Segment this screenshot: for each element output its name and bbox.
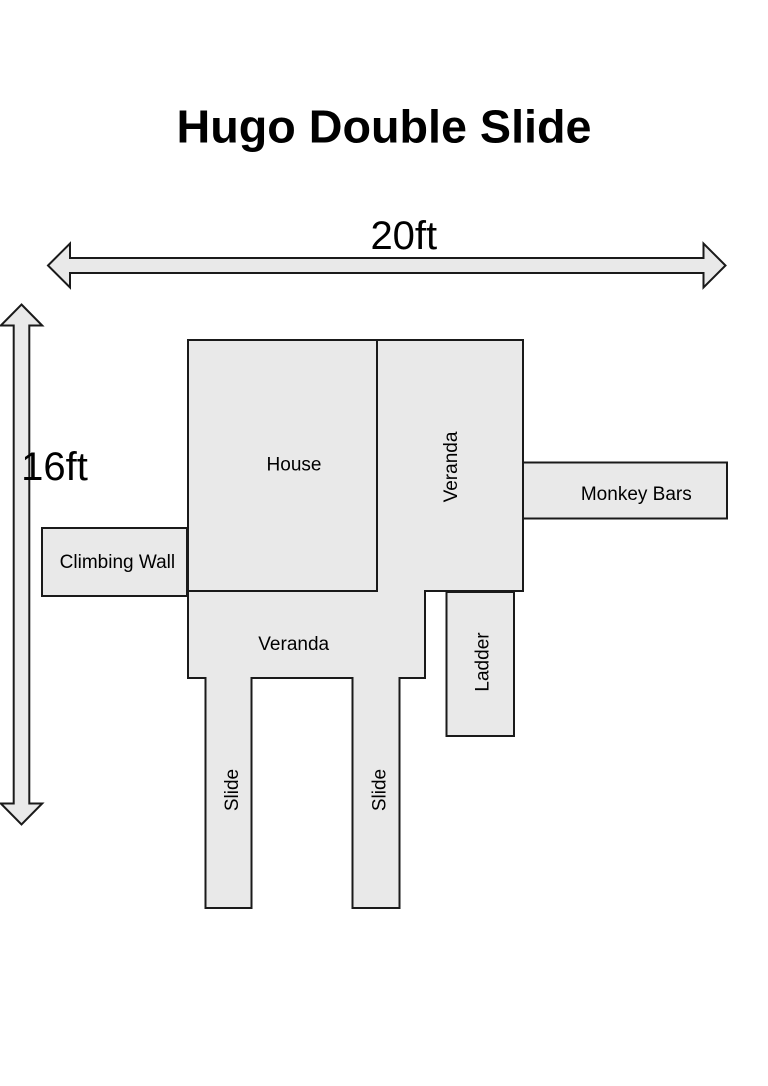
svg-text:Climbing Wall: Climbing Wall: [60, 552, 175, 573]
svg-text:16ft: 16ft: [21, 445, 88, 489]
svg-text:Monkey Bars: Monkey Bars: [581, 484, 692, 505]
svg-text:Slide: Slide: [370, 769, 391, 811]
svg-text:Veranda: Veranda: [441, 431, 462, 502]
svg-text:Slide: Slide: [222, 769, 243, 811]
svg-text:House: House: [267, 455, 322, 476]
svg-text:Hugo Double Slide: Hugo Double Slide: [177, 101, 592, 153]
svg-text:Veranda: Veranda: [258, 634, 329, 655]
svg-text:20ft: 20ft: [370, 214, 437, 258]
svg-text:Ladder: Ladder: [472, 632, 493, 692]
